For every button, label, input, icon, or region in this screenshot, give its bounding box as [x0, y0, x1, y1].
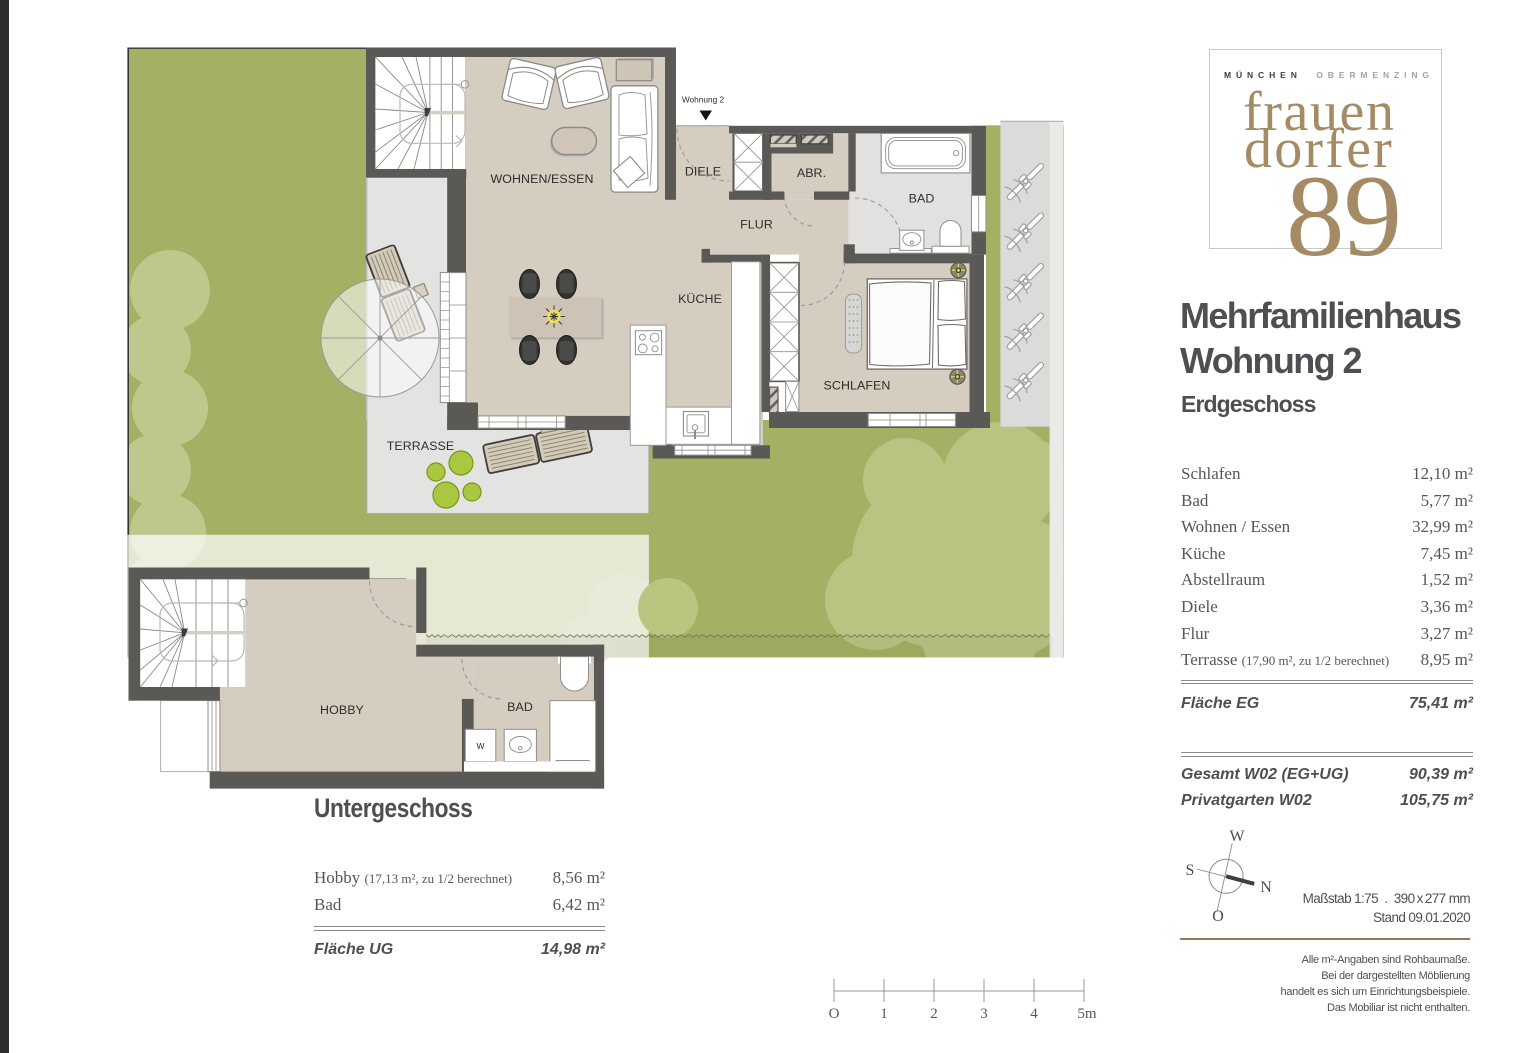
svg-text:S: S: [1186, 862, 1195, 879]
svg-text:ABR.: ABR.: [797, 166, 826, 180]
svg-text:Wohnung 2: Wohnung 2: [682, 95, 725, 105]
svg-text:KÜCHE: KÜCHE: [678, 292, 722, 306]
svg-text:DIELE: DIELE: [685, 165, 721, 179]
svg-text:HOBBY: HOBBY: [320, 703, 364, 717]
svg-text:2: 2: [930, 1006, 938, 1022]
svg-text:BAD: BAD: [909, 192, 935, 206]
svg-text:O: O: [829, 1006, 840, 1022]
svg-text:SCHLAFEN: SCHLAFEN: [824, 379, 891, 393]
svg-text:W: W: [476, 741, 484, 751]
svg-text:TERRASSE: TERRASSE: [387, 439, 455, 453]
svg-text:W: W: [1229, 828, 1245, 845]
svg-text:4: 4: [1030, 1006, 1038, 1022]
svg-text:1: 1: [880, 1006, 888, 1022]
svg-text:5m: 5m: [1077, 1006, 1097, 1022]
svg-text:BAD: BAD: [507, 700, 533, 714]
svg-text:WOHNEN/ESSEN: WOHNEN/ESSEN: [490, 172, 593, 186]
svg-text:3: 3: [980, 1006, 988, 1022]
svg-text:FLUR: FLUR: [740, 218, 773, 232]
